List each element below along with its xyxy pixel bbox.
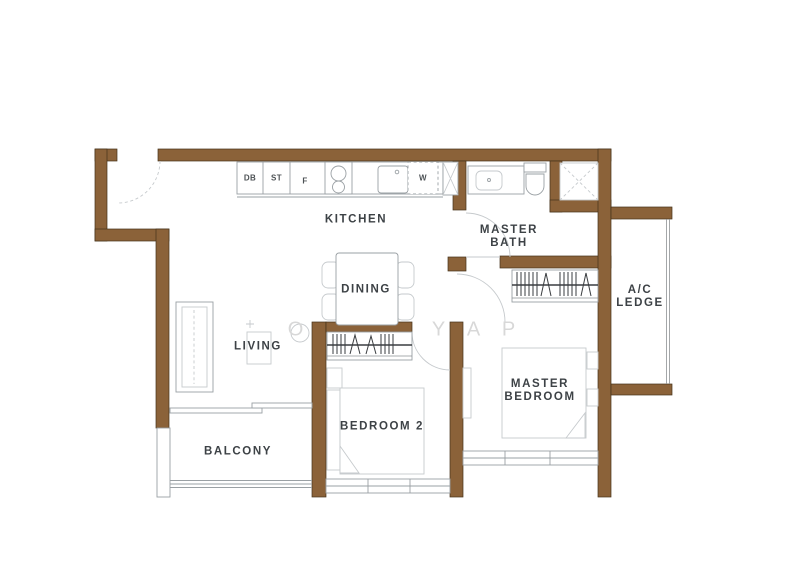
master-wardrobe: [512, 270, 598, 302]
sliding-door-panel-2: [252, 403, 312, 408]
wall-left-mid: [156, 229, 169, 428]
kitchen-label: KITCHEN: [325, 214, 387, 227]
bath-shaft: [560, 163, 598, 200]
ac-ledge-label: A/C LEDGE: [616, 284, 664, 310]
bedroom2-label: BEDROOM 2: [340, 421, 424, 434]
floor-plan-drawing: [0, 0, 800, 584]
db-cabinet-label: DB: [244, 174, 256, 183]
wall-bedrooms-divider: [450, 322, 463, 497]
vanity-basin: [476, 171, 502, 190]
master-bedroom-furniture: [463, 270, 598, 465]
master-dresser: [463, 368, 471, 418]
dining-chair-3: [396, 262, 414, 288]
bedroom2-side-table: [327, 368, 342, 388]
sliding-door-panel-1: [170, 408, 262, 413]
wall-right: [598, 149, 611, 497]
kitchen-sink: [378, 166, 408, 193]
watermark-letter-p: P: [502, 319, 516, 342]
fridge-label: F: [302, 177, 307, 186]
toilet-tank: [524, 163, 546, 172]
master-bath-label-line1: MASTER: [480, 224, 538, 236]
master-bedroom-label: MASTER BEDROOM: [504, 378, 575, 404]
washer-label: W: [419, 174, 427, 183]
wall-top-main: [158, 149, 611, 161]
ac-ledge-label-line1: A/C: [628, 284, 653, 296]
floor-plan: KITCHEN MASTER BATH DINING LIVING A/C LE…: [0, 0, 800, 584]
dining-chair-4: [396, 294, 414, 320]
coffee-table-cross: [246, 320, 254, 328]
bedroom2-wardrobe: [327, 332, 412, 360]
bedroom2-window: [326, 479, 450, 493]
wall-ac-bottom: [611, 384, 672, 395]
master-bedside-table-1: [587, 352, 598, 369]
watermark-letter-y: Y: [432, 319, 446, 342]
wall-ac-top: [611, 207, 672, 219]
master-bedroom-label-line2: BEDROOM: [504, 391, 575, 403]
ac-ledge-edge: [667, 219, 670, 384]
dining-label: DINING: [341, 284, 391, 297]
master-bath-label: MASTER BATH: [480, 224, 538, 250]
balcony-left-column: [157, 428, 170, 497]
wall-bath-bottom: [500, 256, 611, 268]
toilet-bowl: [526, 174, 544, 195]
master-window: [463, 451, 598, 465]
bedroom2-pillow-strip: [327, 390, 340, 470]
kitchen-shaft: [443, 162, 458, 195]
master-bedroom-label-line1: MASTER: [511, 378, 569, 390]
wall-bedroom2-left: [312, 322, 326, 497]
balcony-label: BALCONY: [204, 446, 272, 459]
entry-door-arc: [118, 161, 160, 203]
watermark-letter-o: O: [288, 319, 305, 342]
st-cabinet-label: ST: [271, 174, 282, 183]
living-label: LIVING: [234, 341, 282, 354]
wall-bath-door-stub: [448, 257, 466, 271]
wall-left-upper: [95, 149, 107, 241]
hob-unit: [325, 162, 352, 194]
master-bedroom-door-arc: [457, 274, 505, 322]
ac-ledge-label-line2: LEDGE: [616, 297, 664, 309]
watermark-letter-a: A: [467, 319, 481, 342]
bedroom2-furniture: [326, 332, 450, 493]
sofa-cushions: [182, 307, 207, 387]
master-bath-label-line2: BATH: [490, 237, 528, 249]
master-bedside-table-2: [587, 389, 598, 406]
